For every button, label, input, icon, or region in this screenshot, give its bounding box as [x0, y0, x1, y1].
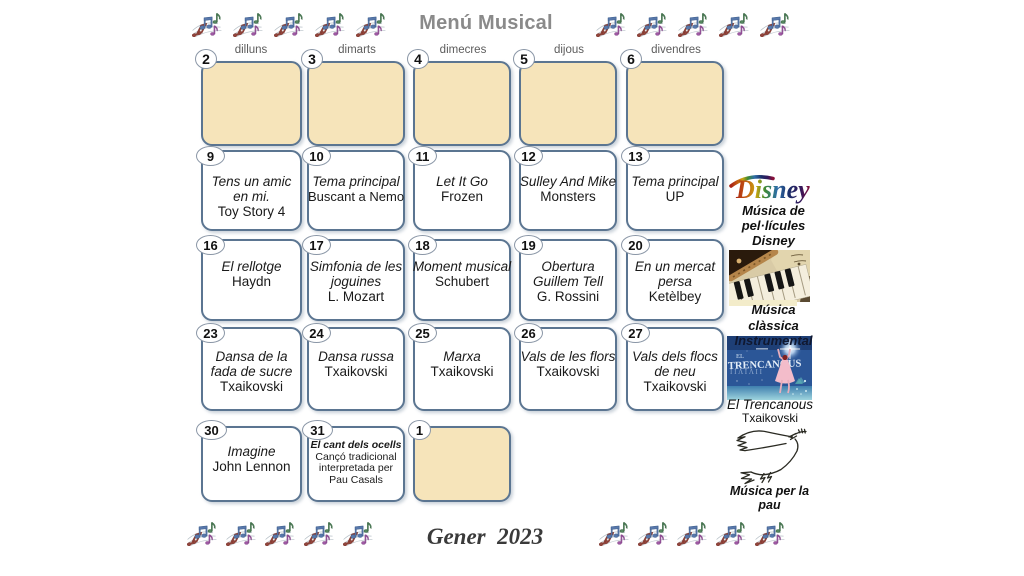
svg-text:EL: EL [736, 353, 744, 360]
svg-text:I I Λ I Λ I I: I I Λ I Λ I I [730, 368, 763, 376]
svg-text:Disney: Disney [735, 175, 810, 204]
